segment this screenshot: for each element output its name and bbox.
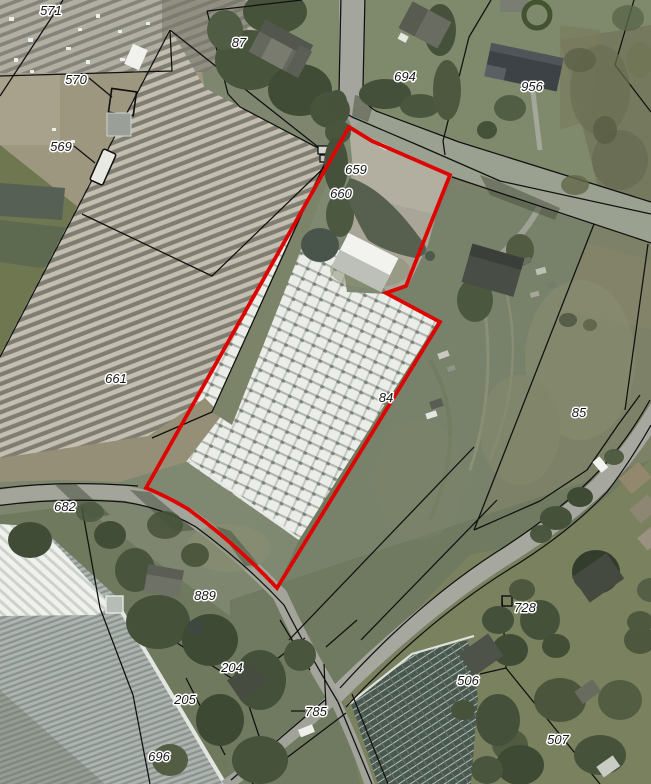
svg-text:87: 87 <box>232 35 247 50</box>
svg-text:728: 728 <box>514 600 536 615</box>
svg-text:661: 661 <box>105 371 127 386</box>
svg-text:506: 506 <box>457 673 479 688</box>
svg-text:889: 889 <box>194 588 216 603</box>
svg-text:682: 682 <box>54 499 76 514</box>
svg-text:570: 570 <box>65 72 87 87</box>
svg-text:659: 659 <box>345 162 367 177</box>
svg-text:205: 205 <box>173 692 196 707</box>
svg-text:660: 660 <box>330 186 352 201</box>
svg-text:785: 785 <box>305 704 327 719</box>
svg-text:694: 694 <box>394 69 416 84</box>
svg-text:84: 84 <box>379 390 393 405</box>
svg-text:696: 696 <box>148 749 170 764</box>
svg-text:569: 569 <box>50 139 72 154</box>
svg-text:571: 571 <box>40 3 62 18</box>
svg-text:956: 956 <box>521 79 543 94</box>
svg-text:507: 507 <box>547 732 569 747</box>
svg-text:85: 85 <box>572 405 587 420</box>
svg-text:204: 204 <box>220 660 243 675</box>
